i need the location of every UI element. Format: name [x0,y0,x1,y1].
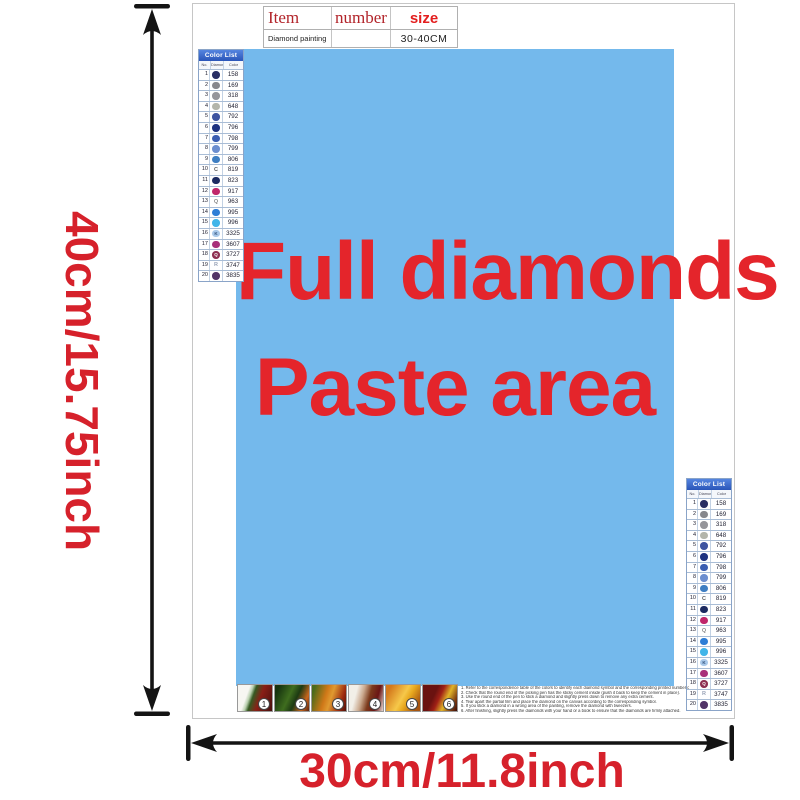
row-number: 1 [687,499,698,509]
diamond-color-dot [700,670,708,678]
diamond-symbol-cell [210,218,223,228]
diamond-color-dot: Q [700,680,708,688]
color-list-row: 1158 [687,499,731,509]
color-list-column-headers: No. Diamond Color [687,490,731,499]
color-list-row: 6796 [687,551,731,562]
diamond-symbol-cell [698,541,711,551]
color-list-row: 4648 [199,101,243,112]
dmc-color-code: 819 [711,594,731,604]
diamond-symbol-cell: K [210,229,223,239]
dmc-color-code: 169 [711,510,731,520]
diamond-symbol-cell [210,91,223,101]
diamond-symbol-cell [698,552,711,562]
diamond-symbol-cell [698,520,711,530]
dmc-color-code: 318 [711,520,731,530]
diamond-symbol-cell [210,112,223,122]
diamond-symbol-cell [698,700,711,710]
diamond-color-dot [700,617,708,625]
row-number: 4 [199,102,210,112]
dmc-color-code: 796 [711,552,731,562]
height-dimension-label: 40cm/15.75inch [57,211,107,551]
row-number: 10 [687,594,698,604]
dmc-color-code: 318 [223,91,243,101]
col-color-label: Color [712,490,731,498]
color-list-row: 14995 [687,636,731,647]
color-list-row: 2169 [199,80,243,91]
color-list-column-headers: No. Diamond Color [199,61,243,70]
dmc-color-code: 823 [711,605,731,615]
diamond-color-dot [700,511,708,519]
diamond-color-dot [212,219,220,227]
row-number: 6 [199,123,210,133]
color-list-row: 10C819 [199,164,243,175]
step-number-badge: 6 [443,698,455,710]
row-number: 15 [687,647,698,657]
diamond-symbol-cell [210,240,223,250]
dmc-color-code: 798 [711,563,731,573]
dmc-color-code: 3727 [223,250,243,260]
col-color-label: Color [224,61,243,69]
width-dimension-label: 30cm/11.8inch [186,746,738,798]
dmc-color-code: 995 [223,208,243,218]
step-thumbnail-3: 3 [311,684,347,712]
instructions-text: 1. Refer to the correspondence table of … [461,686,689,714]
instruction-line: 6. After finishing, slightly press the d… [461,709,689,714]
dmc-color-code: 917 [711,616,731,626]
diamond-color-dot [700,532,708,540]
color-list-row: 8799 [687,572,731,583]
row-number: 7 [199,134,210,144]
color-list-row: 10C819 [687,593,731,604]
diamond-symbol-cell [210,134,223,144]
color-list-row: 203835 [199,270,243,281]
color-list-row: 3318 [687,519,731,530]
diamond-symbol-cell [698,637,711,647]
diamond-symbol-cell [210,187,223,197]
spec-table-data-row: Diamond painting 30-40CM [264,30,457,47]
diamond-symbol-cell: Q [210,197,223,207]
color-list-row: 19R3747 [199,260,243,271]
row-number: 9 [199,155,210,165]
diamond-color-dot [700,564,708,572]
row-number: 5 [199,112,210,122]
diamond-color-dot [212,124,220,132]
diamond-symbol-cell: K [698,658,711,668]
row-number: 10 [199,165,210,175]
color-list-title: Color List [199,50,243,61]
dmc-color-code: 3727 [711,679,731,689]
color-list-row: 14995 [199,207,243,218]
row-number: 15 [199,218,210,228]
dmc-color-code: 3325 [223,229,243,239]
color-list-row: 13Q963 [199,196,243,207]
diamond-color-dot [700,553,708,561]
spec-table: Item number size Diamond painting 30-40C… [263,6,458,48]
color-list-row: 203835 [687,699,731,710]
step-thumbnail-1: 1 [237,684,273,712]
diamond-color-dot [212,92,220,100]
dmc-color-code: 917 [223,187,243,197]
diamond-symbol-cell: Q [698,626,711,636]
row-number: 18 [199,250,210,260]
spec-number-value [331,30,390,47]
dmc-color-code: 3747 [711,690,731,700]
diamond-symbol-cell: R [698,690,711,700]
diamond-symbol-cell [698,584,711,594]
row-number: 6 [687,552,698,562]
color-list-row: 1158 [199,70,243,80]
row-number: 3 [199,91,210,101]
step-number-badge: 3 [332,698,344,710]
color-list-row: 3318 [199,90,243,101]
diamond-symbol-cell [210,81,223,91]
canvas-sheet: Item number size Diamond painting 30-40C… [192,3,735,719]
row-number: 8 [199,144,210,154]
diamond-color-dot [212,145,220,153]
row-number: 3 [687,520,698,530]
dmc-color-code: 798 [223,134,243,144]
color-list-row: 5792 [199,111,243,122]
color-list-right: Color List No. Diamond Color 11582169331… [686,478,732,711]
diamond-color-dot [212,241,220,249]
dmc-color-code: 963 [711,626,731,636]
step-number-badge: 5 [406,698,418,710]
row-number: 11 [687,605,698,615]
dmc-color-code: 648 [711,531,731,541]
diamond-color-dot [212,113,220,121]
dmc-color-code: 963 [223,197,243,207]
color-list-row: 12917 [687,615,731,626]
diamond-symbol-cell [210,144,223,154]
dmc-color-code: 3747 [223,261,243,271]
dmc-color-code: 806 [711,584,731,594]
color-list-row: 18Q3727 [687,678,731,689]
dmc-color-code: 169 [223,81,243,91]
diamond-symbol-cell: C [210,165,223,175]
diamond-symbol-cell [698,605,711,615]
row-number: 2 [687,510,698,520]
diamond-symbol-cell: C [698,594,711,604]
row-number: 13 [199,197,210,207]
dmc-color-code: 799 [711,573,731,583]
diamond-symbol-cell [210,271,223,281]
color-list-left: Color List No. Diamond Color 11582169331… [198,49,244,282]
diamond-color-dot [212,177,220,185]
row-number: 17 [687,669,698,679]
diamond-symbol-cell [698,647,711,657]
dmc-color-code: 158 [711,499,731,509]
diamond-color-dot [700,542,708,550]
color-list-row: 5792 [687,540,731,551]
diamond-symbol-cell: R [210,261,223,271]
paste-area-title-line1: Full diamonds [236,231,674,313]
diamond-color-dot: K [700,659,708,667]
diamond-color-dot [212,156,220,164]
diamond-symbol-cell: Q [210,250,223,260]
color-list-row: 16K3325 [687,657,731,668]
row-number: 4 [687,531,698,541]
color-list-row: 13Q963 [687,625,731,636]
color-list-rows: 11582169331846485792679677988799980610C8… [199,70,243,281]
diamond-symbol-cell [698,531,711,541]
color-list-row: 173607 [687,668,731,679]
diamond-symbol-cell [698,669,711,679]
diamond-color-dot [700,500,708,508]
diamond-color-dot [212,71,220,79]
dmc-color-code: 3835 [223,271,243,281]
diamond-symbol-cell [698,499,711,509]
row-number: 17 [199,240,210,250]
diamond-color-dot [212,188,220,196]
row-number: 12 [687,616,698,626]
row-number: 11 [199,176,210,186]
color-list-row: 19R3747 [687,689,731,700]
diamond-color-dot [212,209,220,217]
dmc-color-code: 996 [711,647,731,657]
color-list-row: 18Q3727 [199,249,243,260]
row-number: 5 [687,541,698,551]
col-symbol-label: Diamond [699,490,712,498]
color-list-row: 15996 [199,217,243,228]
col-symbol-label: Diamond [211,61,224,69]
dmc-color-code: 648 [223,102,243,112]
row-number: 1 [199,70,210,80]
color-list-row: 9806 [199,154,243,165]
diamond-color-dot [700,574,708,582]
diamond-color-dot [700,585,708,593]
spec-item-value: Diamond painting [264,30,331,47]
diamond-symbol-cell [698,573,711,583]
color-list-row: 7798 [199,133,243,144]
dmc-color-code: 796 [223,123,243,133]
color-list-row: 4648 [687,530,731,541]
diamond-symbol-cell [698,563,711,573]
height-dimension-arrow [132,4,172,716]
step-number-badge: 4 [369,698,381,710]
color-list-title: Color List [687,479,731,490]
spec-col-item: Item [264,7,331,29]
row-number: 16 [199,229,210,239]
color-list-row: 8799 [199,143,243,154]
dmc-color-code: 158 [223,70,243,80]
color-list-row: 11823 [199,175,243,186]
row-number: 20 [199,271,210,281]
spec-size-value: 30-40CM [390,30,457,47]
dmc-color-code: 3607 [711,669,731,679]
diamond-color-dot [700,638,708,646]
color-list-rows: 11582169331846485792679677988799980610C8… [687,499,731,710]
dmc-color-code: 995 [711,637,731,647]
row-number: 12 [199,187,210,197]
diamond-color-dot: Q [212,251,220,259]
diamond-symbol-cell [210,208,223,218]
diamond-symbol-cell [210,155,223,165]
step-thumbnail-4: 4 [348,684,384,712]
diamond-color-dot [700,701,708,709]
step-number-badge: 2 [295,698,307,710]
step-thumbnail-6: 6 [422,684,458,712]
row-number: 19 [199,261,210,271]
color-list-row: 2169 [687,509,731,520]
diamond-color-dot: K [212,230,220,238]
row-number: 8 [687,573,698,583]
step-number-badge: 1 [258,698,270,710]
row-number: 2 [199,81,210,91]
dmc-color-code: 792 [711,541,731,551]
color-list-row: 7798 [687,562,731,573]
dmc-color-code: 823 [223,176,243,186]
color-list-row: 15996 [687,646,731,657]
diamond-symbol-cell [210,70,223,80]
diamond-symbol-cell [698,510,711,520]
row-number: 9 [687,584,698,594]
color-list-row: 11823 [687,604,731,615]
step-thumbnail-5: 5 [385,684,421,712]
spec-col-number: number [331,7,390,29]
col-no-label: No. [687,490,699,498]
diamond-color-dot [700,648,708,656]
row-number: 14 [199,208,210,218]
diamond-color-dot [212,82,220,90]
diamond-symbol-cell [210,102,223,112]
row-number: 14 [687,637,698,647]
row-number: 13 [687,626,698,636]
spec-table-header-row: Item number size [264,7,457,30]
diamond-symbol-cell [698,616,711,626]
row-number: 7 [687,563,698,573]
diamond-color-dot [212,272,220,280]
diamond-symbol-cell [210,176,223,186]
step-thumbnails: 123456 [237,684,458,712]
diamond-color-dot [212,135,220,143]
dmc-color-code: 792 [223,112,243,122]
dmc-color-code: 819 [223,165,243,175]
dmc-color-code: 3607 [223,240,243,250]
color-list-row: 12917 [199,186,243,197]
diamond-symbol-cell: Q [698,679,711,689]
dmc-color-code: 799 [223,144,243,154]
color-list-row: 6796 [199,122,243,133]
row-number: 16 [687,658,698,668]
color-list-row: 16K3325 [199,228,243,239]
diamond-color-dot [212,103,220,111]
step-thumbnail-2: 2 [274,684,310,712]
dmc-color-code: 3835 [711,700,731,710]
dmc-color-code: 806 [223,155,243,165]
paste-area-title-line2: Paste area [236,347,674,429]
color-list-row: 173607 [199,239,243,250]
paste-area: Full diamonds Paste area [236,49,674,686]
dmc-color-code: 996 [223,218,243,228]
col-no-label: No. [199,61,211,69]
spec-col-size: size [390,7,457,29]
diamond-color-dot [700,521,708,529]
diamond-color-dot [700,606,708,614]
color-list-row: 9806 [687,583,731,594]
diamond-symbol-cell [210,123,223,133]
dmc-color-code: 3325 [711,658,731,668]
